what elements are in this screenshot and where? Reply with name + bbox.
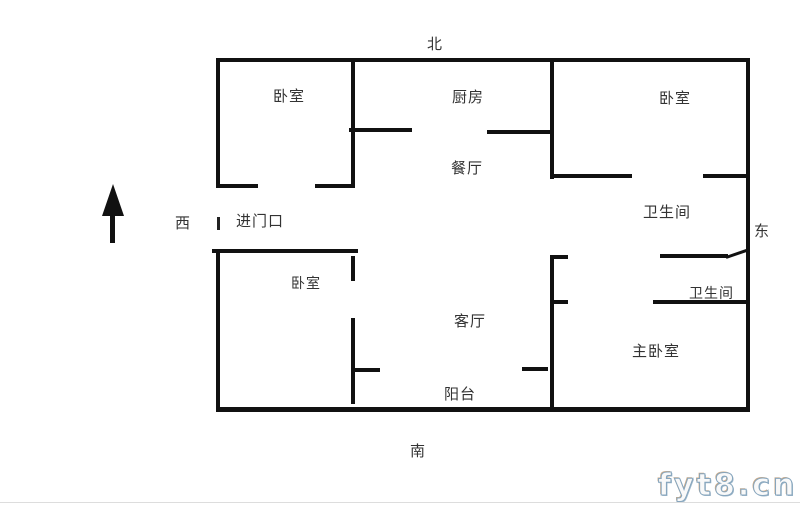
wall-kitchen-right bbox=[487, 130, 552, 134]
wall-outer-left-lower bbox=[216, 250, 220, 410]
wall-bedroom-tl-bottom-left bbox=[216, 184, 258, 188]
floor-plan: 北 南 西 东 卧室 厨房 卧室 餐厅 卫生间 进门口 卧室 卫生间 客厅 主卧… bbox=[0, 0, 800, 510]
site-watermark: fyt8.cn bbox=[658, 468, 797, 503]
wall-balcony-tick bbox=[522, 367, 548, 371]
compass-west-label: 西 bbox=[175, 216, 191, 231]
wall-center-vertical-upper bbox=[550, 58, 554, 179]
compass-east-label: 东 bbox=[754, 224, 770, 239]
wall-outer-right bbox=[746, 58, 750, 412]
wall-bedroom-tr-bottom-left bbox=[550, 174, 632, 178]
north-arrow-icon bbox=[102, 184, 124, 216]
wall-center-vertical-lower bbox=[550, 255, 554, 410]
wall-bedroom-ll-top bbox=[212, 249, 358, 253]
wall-kitchen-left bbox=[349, 128, 412, 132]
room-label-bathroom-lower: 卫生间 bbox=[689, 287, 734, 301]
room-label-living: 客厅 bbox=[454, 314, 486, 329]
wall-bedroom-ll-right-lower bbox=[351, 318, 355, 404]
room-label-kitchen: 厨房 bbox=[452, 90, 484, 105]
wall-bathroom-upper-bottom bbox=[660, 254, 728, 258]
room-label-entrance: 进门口 bbox=[236, 214, 284, 229]
wall-outer-left-upper bbox=[216, 58, 220, 188]
room-label-bedroom-lower-left: 卧室 bbox=[291, 277, 321, 291]
room-label-dining: 餐厅 bbox=[451, 161, 483, 176]
room-label-bathroom-upper: 卫生间 bbox=[643, 205, 691, 220]
wall-bedroom-tl-divider bbox=[351, 58, 355, 186]
room-label-bedroom-top-left: 卧室 bbox=[273, 89, 305, 104]
wall-bedroom-ll-right-upper bbox=[351, 256, 355, 281]
room-label-bedroom-top-right: 卧室 bbox=[659, 91, 691, 106]
north-arrow-shaft bbox=[110, 214, 115, 243]
room-label-balcony: 阳台 bbox=[444, 387, 476, 402]
wall-bedroom-ll-tick bbox=[351, 368, 380, 372]
wall-tick-hall-upper bbox=[550, 255, 568, 259]
compass-north-label: 北 bbox=[427, 37, 443, 52]
wall-tick-hall-lower bbox=[550, 300, 568, 304]
wall-bedroom-tl-bottom-right bbox=[315, 184, 355, 188]
wall-outer-bottom bbox=[216, 407, 750, 412]
page-bottom-divider bbox=[0, 502, 800, 503]
compass-south-label: 南 bbox=[410, 444, 426, 459]
wall-bedroom-tr-bottom-right bbox=[703, 174, 750, 178]
room-label-master-bedroom: 主卧室 bbox=[632, 344, 680, 359]
wall-outer-top bbox=[216, 58, 750, 62]
entrance-door-mark bbox=[217, 217, 220, 230]
